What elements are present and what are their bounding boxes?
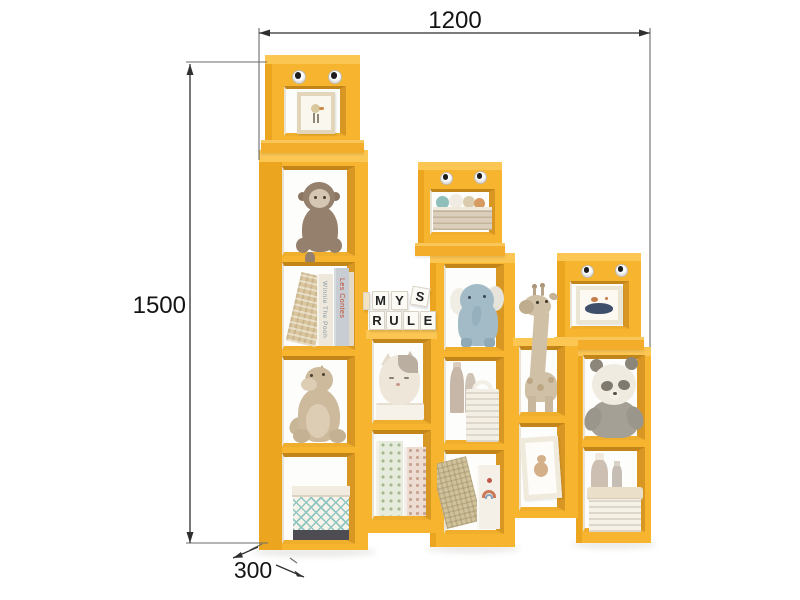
height-dimension-label: 1500 — [128, 292, 186, 320]
arrowhead — [639, 30, 650, 37]
arrowhead — [259, 30, 270, 37]
kids-bookshelf-dimension-diagram: Winnie The Pooh Les Contes — [0, 0, 800, 600]
width-dimension-label: 1200 — [413, 7, 497, 35]
dimension-lines — [0, 0, 800, 600]
arrowhead — [187, 64, 194, 75]
extension-line — [290, 558, 297, 563]
arrowhead — [295, 571, 305, 578]
arrowhead — [187, 532, 194, 543]
depth-dimension-label: 300 — [228, 557, 278, 584]
